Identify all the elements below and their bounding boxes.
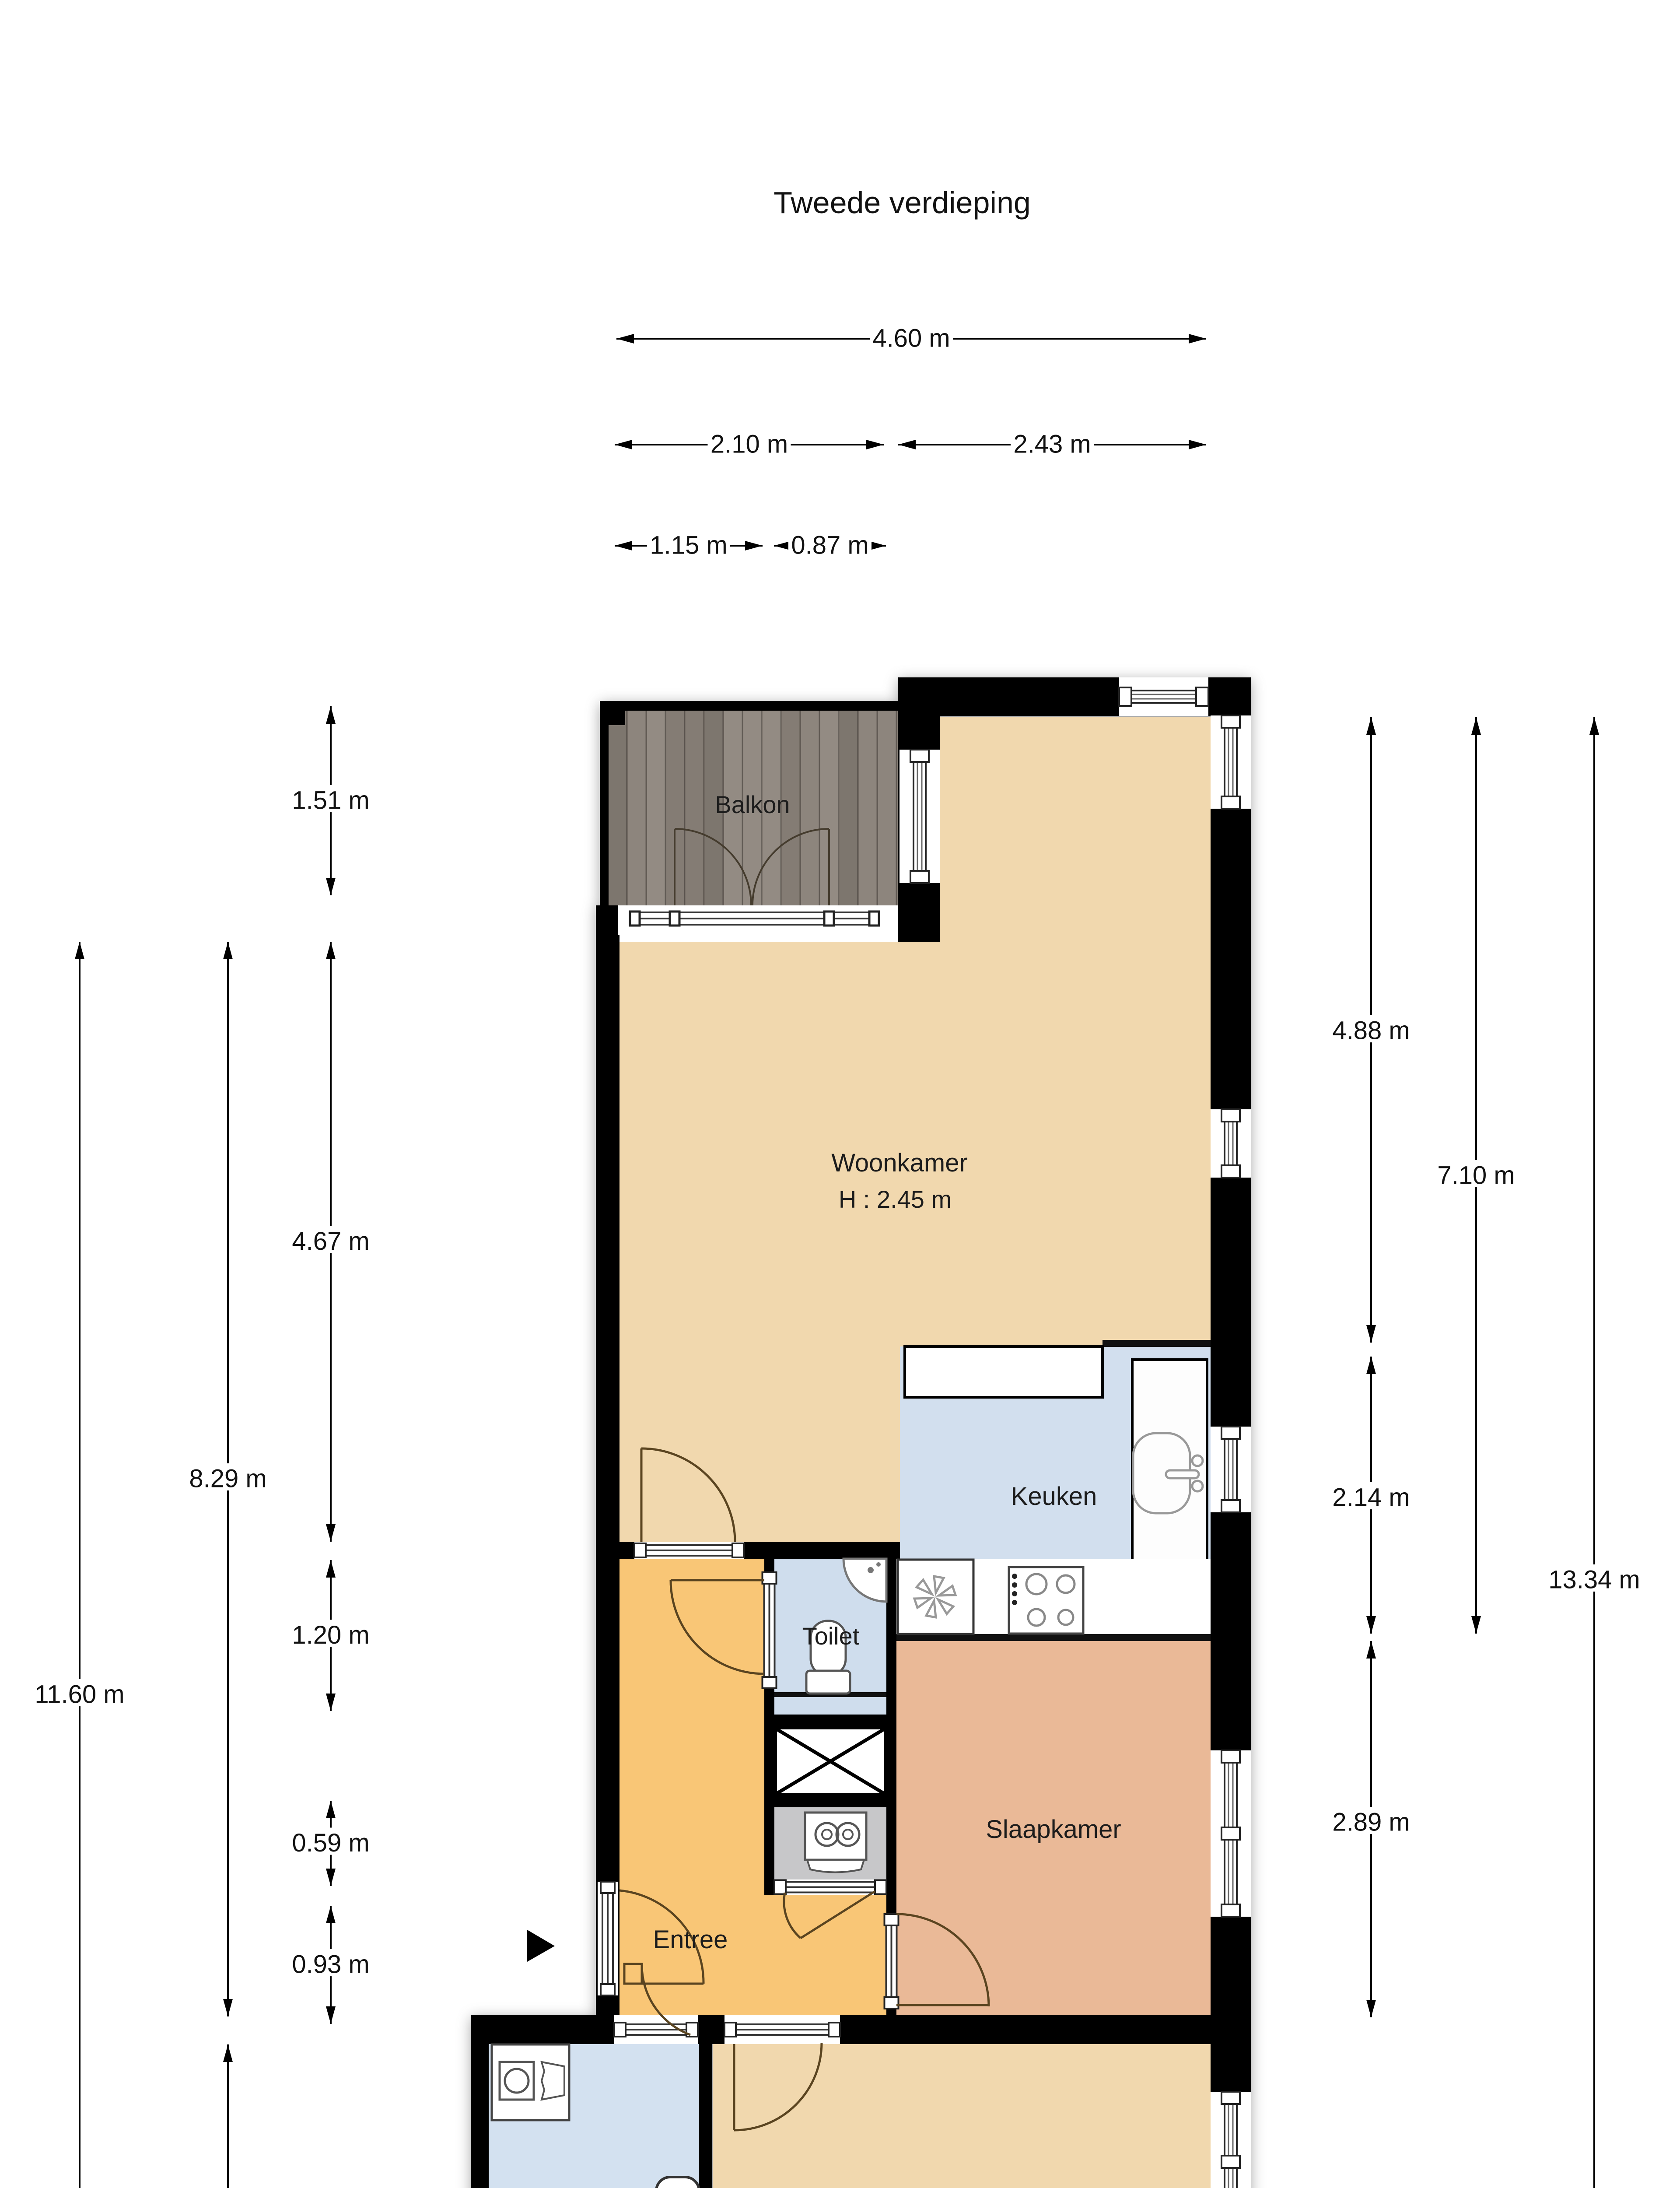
svg-text:Keuken: Keuken: [1011, 1482, 1097, 1511]
svg-text:4.60 m: 4.60 m: [872, 324, 950, 353]
svg-text:Tweede verdieping: Tweede verdieping: [773, 186, 1031, 220]
svg-text:Toilet: Toilet: [802, 1622, 860, 1650]
svg-text:0.87 m: 0.87 m: [791, 531, 868, 560]
svg-text:Slaapkamer: Slaapkamer: [986, 1815, 1121, 1844]
svg-text:13.34 m: 13.34 m: [1548, 1566, 1640, 1594]
svg-text:8.29 m: 8.29 m: [189, 1465, 266, 1493]
svg-text:1.51 m: 1.51 m: [292, 786, 369, 815]
svg-text:2.89 m: 2.89 m: [1332, 1808, 1410, 1837]
svg-text:1.15 m: 1.15 m: [650, 531, 727, 560]
svg-text:Entree: Entree: [653, 1925, 728, 1954]
svg-text:11.60 m: 11.60 m: [35, 1680, 124, 1709]
svg-text:4.67 m: 4.67 m: [292, 1227, 369, 1255]
svg-text:H : 2.45 m: H : 2.45 m: [839, 1185, 952, 1213]
svg-text:4.88 m: 4.88 m: [1332, 1017, 1410, 1045]
svg-text:7.10 m: 7.10 m: [1437, 1161, 1515, 1190]
svg-text:0.93 m: 0.93 m: [292, 1950, 369, 1979]
svg-text:2.14 m: 2.14 m: [1332, 1483, 1410, 1512]
svg-text:0.59 m: 0.59 m: [292, 1829, 369, 1857]
svg-text:2.10 m: 2.10 m: [710, 430, 788, 459]
svg-text:2.43 m: 2.43 m: [1013, 430, 1091, 459]
svg-text:Balkon: Balkon: [715, 791, 790, 818]
svg-text:1.20 m: 1.20 m: [292, 1621, 369, 1649]
svg-text:Woonkamer: Woonkamer: [831, 1149, 968, 1177]
